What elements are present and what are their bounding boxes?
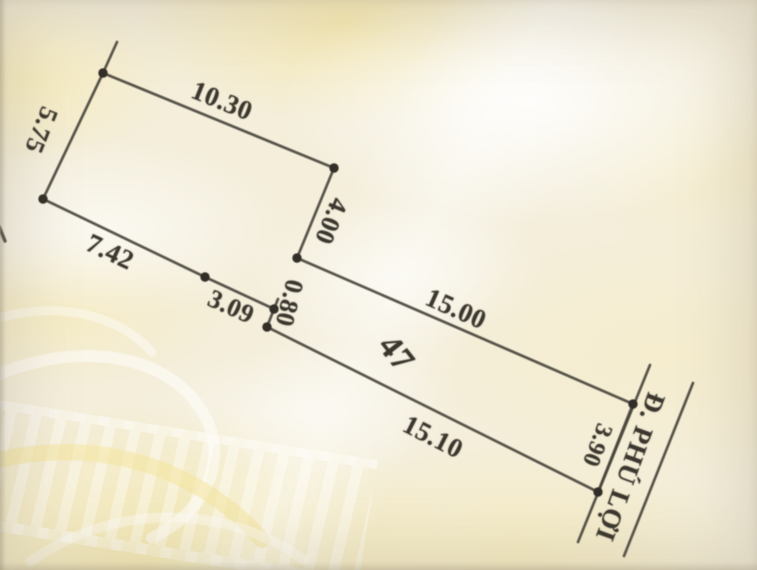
vertex-dots	[38, 68, 637, 496]
vertex-dot	[200, 272, 209, 281]
vertex-dot	[262, 322, 271, 331]
vertex-dot	[593, 487, 602, 496]
paper-watermark-swirls	[0, 311, 304, 562]
stray-mark-line	[0, 224, 5, 241]
parcel-drawing	[0, 0, 757, 570]
vertex-dot	[98, 68, 107, 77]
vertex-dot	[38, 194, 47, 203]
parcel-boundary	[43, 73, 633, 492]
vertex-dot	[292, 253, 301, 262]
corner-tick-line	[103, 42, 117, 73]
parcel-linework	[0, 42, 693, 556]
ink-layer: 10.30 5.75 4.00 7.42 3.09 0.80 15.00 15.…	[0, 0, 757, 570]
vertex-dot	[329, 163, 338, 172]
survey-sketch-page: 10.30 5.75 4.00 7.42 3.09 0.80 15.00 15.…	[0, 0, 757, 570]
